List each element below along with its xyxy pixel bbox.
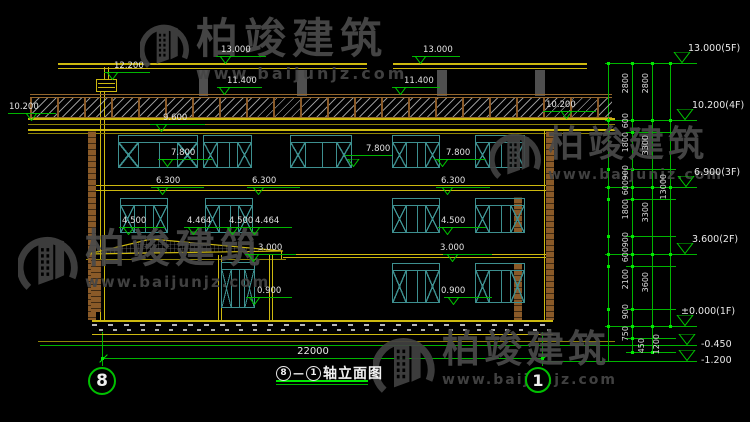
dim-chain-label: 900	[621, 165, 630, 180]
dim-chain-label: 3300	[641, 202, 650, 222]
level-marker-triangle	[441, 187, 454, 195]
level-marker-triangle	[247, 254, 260, 262]
level-marker-triangle	[347, 159, 360, 167]
floor-level-label: -0.450	[701, 340, 732, 350]
level-marker-triangle	[252, 187, 265, 195]
elevation-value-label: 10.200	[546, 101, 576, 110]
level-line	[345, 155, 392, 156]
level-marker-triangle	[155, 124, 168, 132]
elevation-value-label: 3.000	[440, 244, 464, 253]
elevation-value-label: 6.300	[156, 177, 180, 186]
level-marker-triangle	[394, 87, 407, 95]
level-marker-triangle	[218, 87, 231, 95]
level-marker-triangle	[219, 56, 232, 64]
annotation-layer: 13.00012.20011.40013.00011.40010.20010.2…	[0, 0, 750, 422]
elevation-value-label: 7.800	[171, 149, 195, 158]
title-dash: —	[293, 367, 304, 380]
floor-level-triangle	[677, 176, 695, 187]
dim-chain-label: 600	[621, 247, 630, 262]
dim-chain-label: 900	[621, 304, 630, 319]
floor-level-triangle	[678, 350, 696, 361]
level-marker-triangle	[25, 113, 38, 121]
elevation-value-label: 10.200	[9, 103, 39, 112]
dim-chain-label: 3300	[641, 135, 650, 155]
elevation-value-label: 0.900	[441, 287, 465, 296]
dim-chain-label: 600	[621, 113, 630, 128]
level-marker-triangle	[226, 227, 239, 235]
elevation-value-label: 7.800	[446, 149, 470, 158]
axis-bubble-8: 8	[88, 367, 116, 395]
elevation-value-label: 6.300	[441, 177, 465, 186]
elevation-value-label: 6.300	[252, 177, 276, 186]
elevation-value-label: 4.500	[441, 217, 465, 226]
dim-chain-label: 2800	[621, 73, 630, 93]
title-axis-start-bubble: 8	[276, 366, 291, 381]
floor-level-label: 3.600(2F)	[692, 235, 738, 245]
level-marker-triangle	[248, 227, 261, 235]
dim-chain-label: 750	[621, 326, 630, 341]
level-marker-triangle	[106, 72, 119, 80]
level-marker-triangle	[447, 297, 460, 305]
dim-chain-label: 1200	[652, 334, 661, 354]
dim-chain-label: 600	[621, 180, 630, 195]
elevation-value-label: 11.400	[404, 77, 434, 86]
elevation-value-label: 12.200	[114, 62, 144, 71]
dim-chain-label: 900	[621, 232, 630, 247]
elevation-value-label: 7.800	[366, 145, 390, 154]
elevation-value-label: 13.000	[221, 46, 251, 55]
level-marker-triangle	[161, 159, 174, 167]
level-marker-triangle	[414, 56, 427, 64]
floor-level-label: -1.200	[701, 356, 732, 366]
elevation-value-label: 0.900	[257, 287, 281, 296]
elevation-value-label: 4.464	[255, 217, 279, 226]
elevation-value-label: 4.500	[229, 217, 253, 226]
elevation-value-label: 4.500	[122, 217, 146, 226]
elevation-value-label: 3.000	[258, 244, 282, 253]
title-axis-end-bubble: 1	[306, 366, 321, 381]
overall-width-dimension: 22000	[283, 346, 343, 357]
floor-level-label: 13.000(5F)	[688, 44, 740, 54]
floor-level-label: 6.900(3F)	[694, 168, 740, 178]
axis-bubble-1: 1	[525, 367, 551, 393]
level-marker-triangle	[436, 159, 449, 167]
floor-level-label: ±0.000(1F)	[681, 307, 735, 317]
elevation-value-label: 11.400	[227, 77, 257, 86]
floor-level-triangle	[678, 334, 696, 345]
elevation-value-label: 13.000	[423, 46, 453, 55]
elevation-value-label: 9.600	[163, 114, 187, 123]
elevation-value-label: 4.464	[187, 217, 211, 226]
dim-chain-label: 450	[637, 338, 646, 353]
level-marker-triangle	[156, 187, 169, 195]
title-text: 轴立面图	[323, 363, 383, 383]
level-marker-triangle	[441, 227, 454, 235]
dim-chain-label: 1800	[621, 199, 630, 219]
dim-chain-label: 13000	[659, 174, 668, 199]
floor-level-label: 10.200(4F)	[692, 101, 744, 111]
level-marker-triangle	[446, 254, 459, 262]
dim-chain-label: 2100	[621, 269, 630, 289]
dim-chain-label: 1800	[621, 132, 630, 152]
cad-elevation-canvas: 柏竣建筑 www.baijunjz.com 柏竣建筑 www.baijunjz.…	[0, 0, 750, 422]
dim-chain-label: 2800	[641, 73, 650, 93]
drawing-title: 8 — 1 轴立面图	[276, 363, 383, 383]
dim-chain-label: 3600	[641, 272, 650, 292]
level-marker-triangle	[187, 227, 200, 235]
level-marker-triangle	[122, 227, 135, 235]
level-marker-triangle	[248, 297, 261, 305]
level-marker-triangle	[560, 111, 573, 119]
